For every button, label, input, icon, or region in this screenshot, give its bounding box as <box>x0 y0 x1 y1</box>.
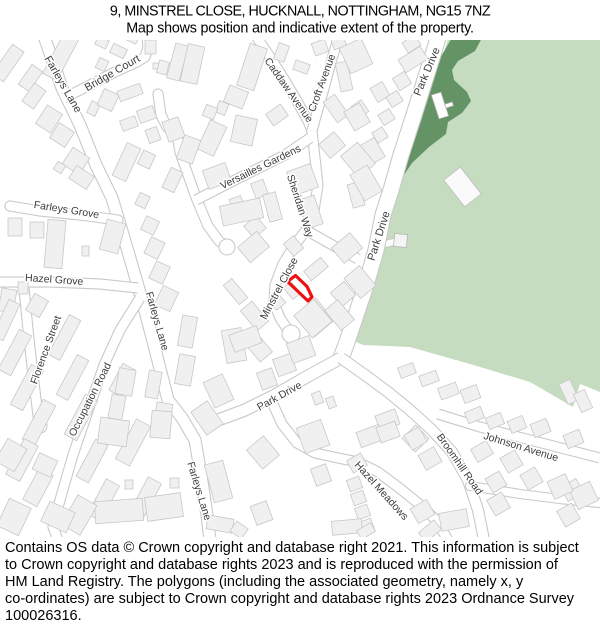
svg-text:co-ordinates) are subject to C: co-ordinates) are subject to Crown copyr… <box>5 591 575 607</box>
svg-text:Contains OS data © Crown copyr: Contains OS data © Crown copyright and d… <box>5 540 579 556</box>
svg-text:100026316.: 100026316. <box>5 608 82 624</box>
svg-text:9, MINSTREL CLOSE, HUCKNALL, N: 9, MINSTREL CLOSE, HUCKNALL, NOTTINGHAM,… <box>110 4 491 20</box>
svg-text:Map shows position and indicat: Map shows position and indicative extent… <box>126 21 474 37</box>
svg-text:to Crown copyright and databas: to Crown copyright and database rights 2… <box>5 557 559 573</box>
svg-text:HM Land Registry. The polygons: HM Land Registry. The polygons (includin… <box>5 574 524 590</box>
